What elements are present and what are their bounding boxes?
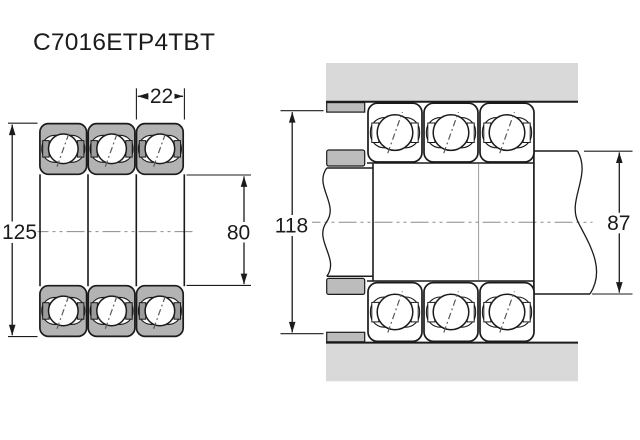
dimension-ring-width: 22 — [136, 85, 184, 120]
outer-diameter-label: 125 — [2, 221, 37, 244]
outer-spacer-bottom — [327, 332, 365, 342]
dimension-bore-diameter: 80 — [187, 175, 253, 285]
bearing-unit — [424, 103, 478, 162]
bearing-unit — [137, 286, 184, 337]
bearing-unit — [88, 124, 135, 175]
shaft-break-left — [323, 168, 331, 276]
technical-drawing: 125 80 22 — [0, 0, 640, 440]
housing-abutment-label: 118 — [275, 214, 308, 237]
bearing-unit — [40, 286, 87, 337]
inner-spacer-bottom — [327, 278, 365, 294]
cross-section-view: 125 80 22 — [2, 85, 253, 337]
bearing-drawing-page: 125 80 22 — [0, 0, 640, 440]
mounted-view: 118 87 — [272, 63, 636, 381]
housing-block-top — [326, 63, 578, 102]
bearing-unit — [368, 283, 422, 342]
bearing-unit — [480, 103, 534, 162]
ring-face-lines — [40, 174, 184, 286]
bearing-unit — [88, 286, 135, 337]
inner-spacer-top — [327, 150, 365, 166]
housing-block-bottom — [326, 343, 578, 382]
bore-diameter-label: 80 — [227, 221, 250, 244]
bearing-unit — [40, 124, 87, 175]
dimension-outer-diameter: 125 — [2, 123, 38, 336]
bearing-unit — [480, 283, 534, 342]
part-number-title: C7016ETP4TBT — [33, 29, 215, 56]
shaft-abutment-label: 87 — [607, 212, 630, 235]
bearing-unit — [137, 124, 184, 175]
bearing-unit — [424, 283, 478, 342]
bearing-unit — [368, 103, 422, 162]
outer-spacer-top — [327, 103, 365, 113]
ring-width-label: 22 — [150, 85, 173, 108]
